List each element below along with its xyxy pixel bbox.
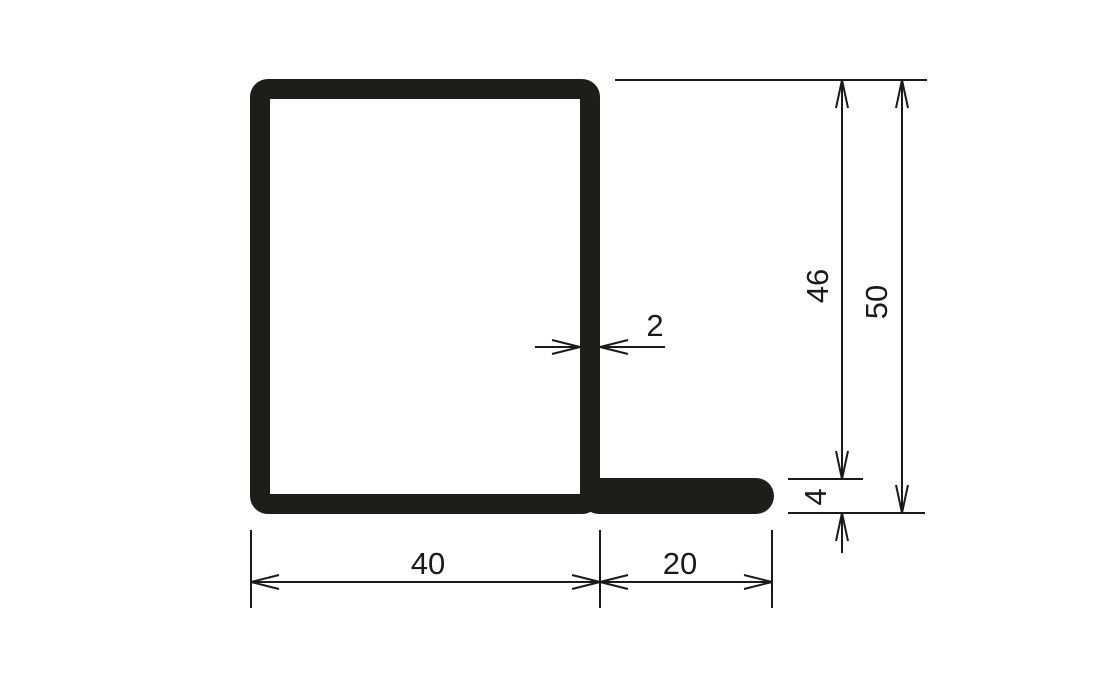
dimension-label-inner-height: 46 xyxy=(800,269,835,303)
dimension-label-flange-thickness: 4 xyxy=(798,488,833,505)
profile-shape xyxy=(260,89,756,504)
profile-body-outline xyxy=(260,89,590,504)
dimension-label-body-width: 40 xyxy=(411,546,445,581)
dimension-label-flange-width: 20 xyxy=(663,546,697,581)
dimension-label-overall-height: 50 xyxy=(859,285,894,319)
technical-drawing-canvas: 46 50 4 40 20 xyxy=(0,0,1119,692)
horizontal-dimensions: 40 20 xyxy=(251,530,772,608)
dimension-label-wall-thickness: 2 xyxy=(646,308,663,343)
profile-cross-section-drawing: 46 50 4 40 20 xyxy=(0,0,1119,692)
